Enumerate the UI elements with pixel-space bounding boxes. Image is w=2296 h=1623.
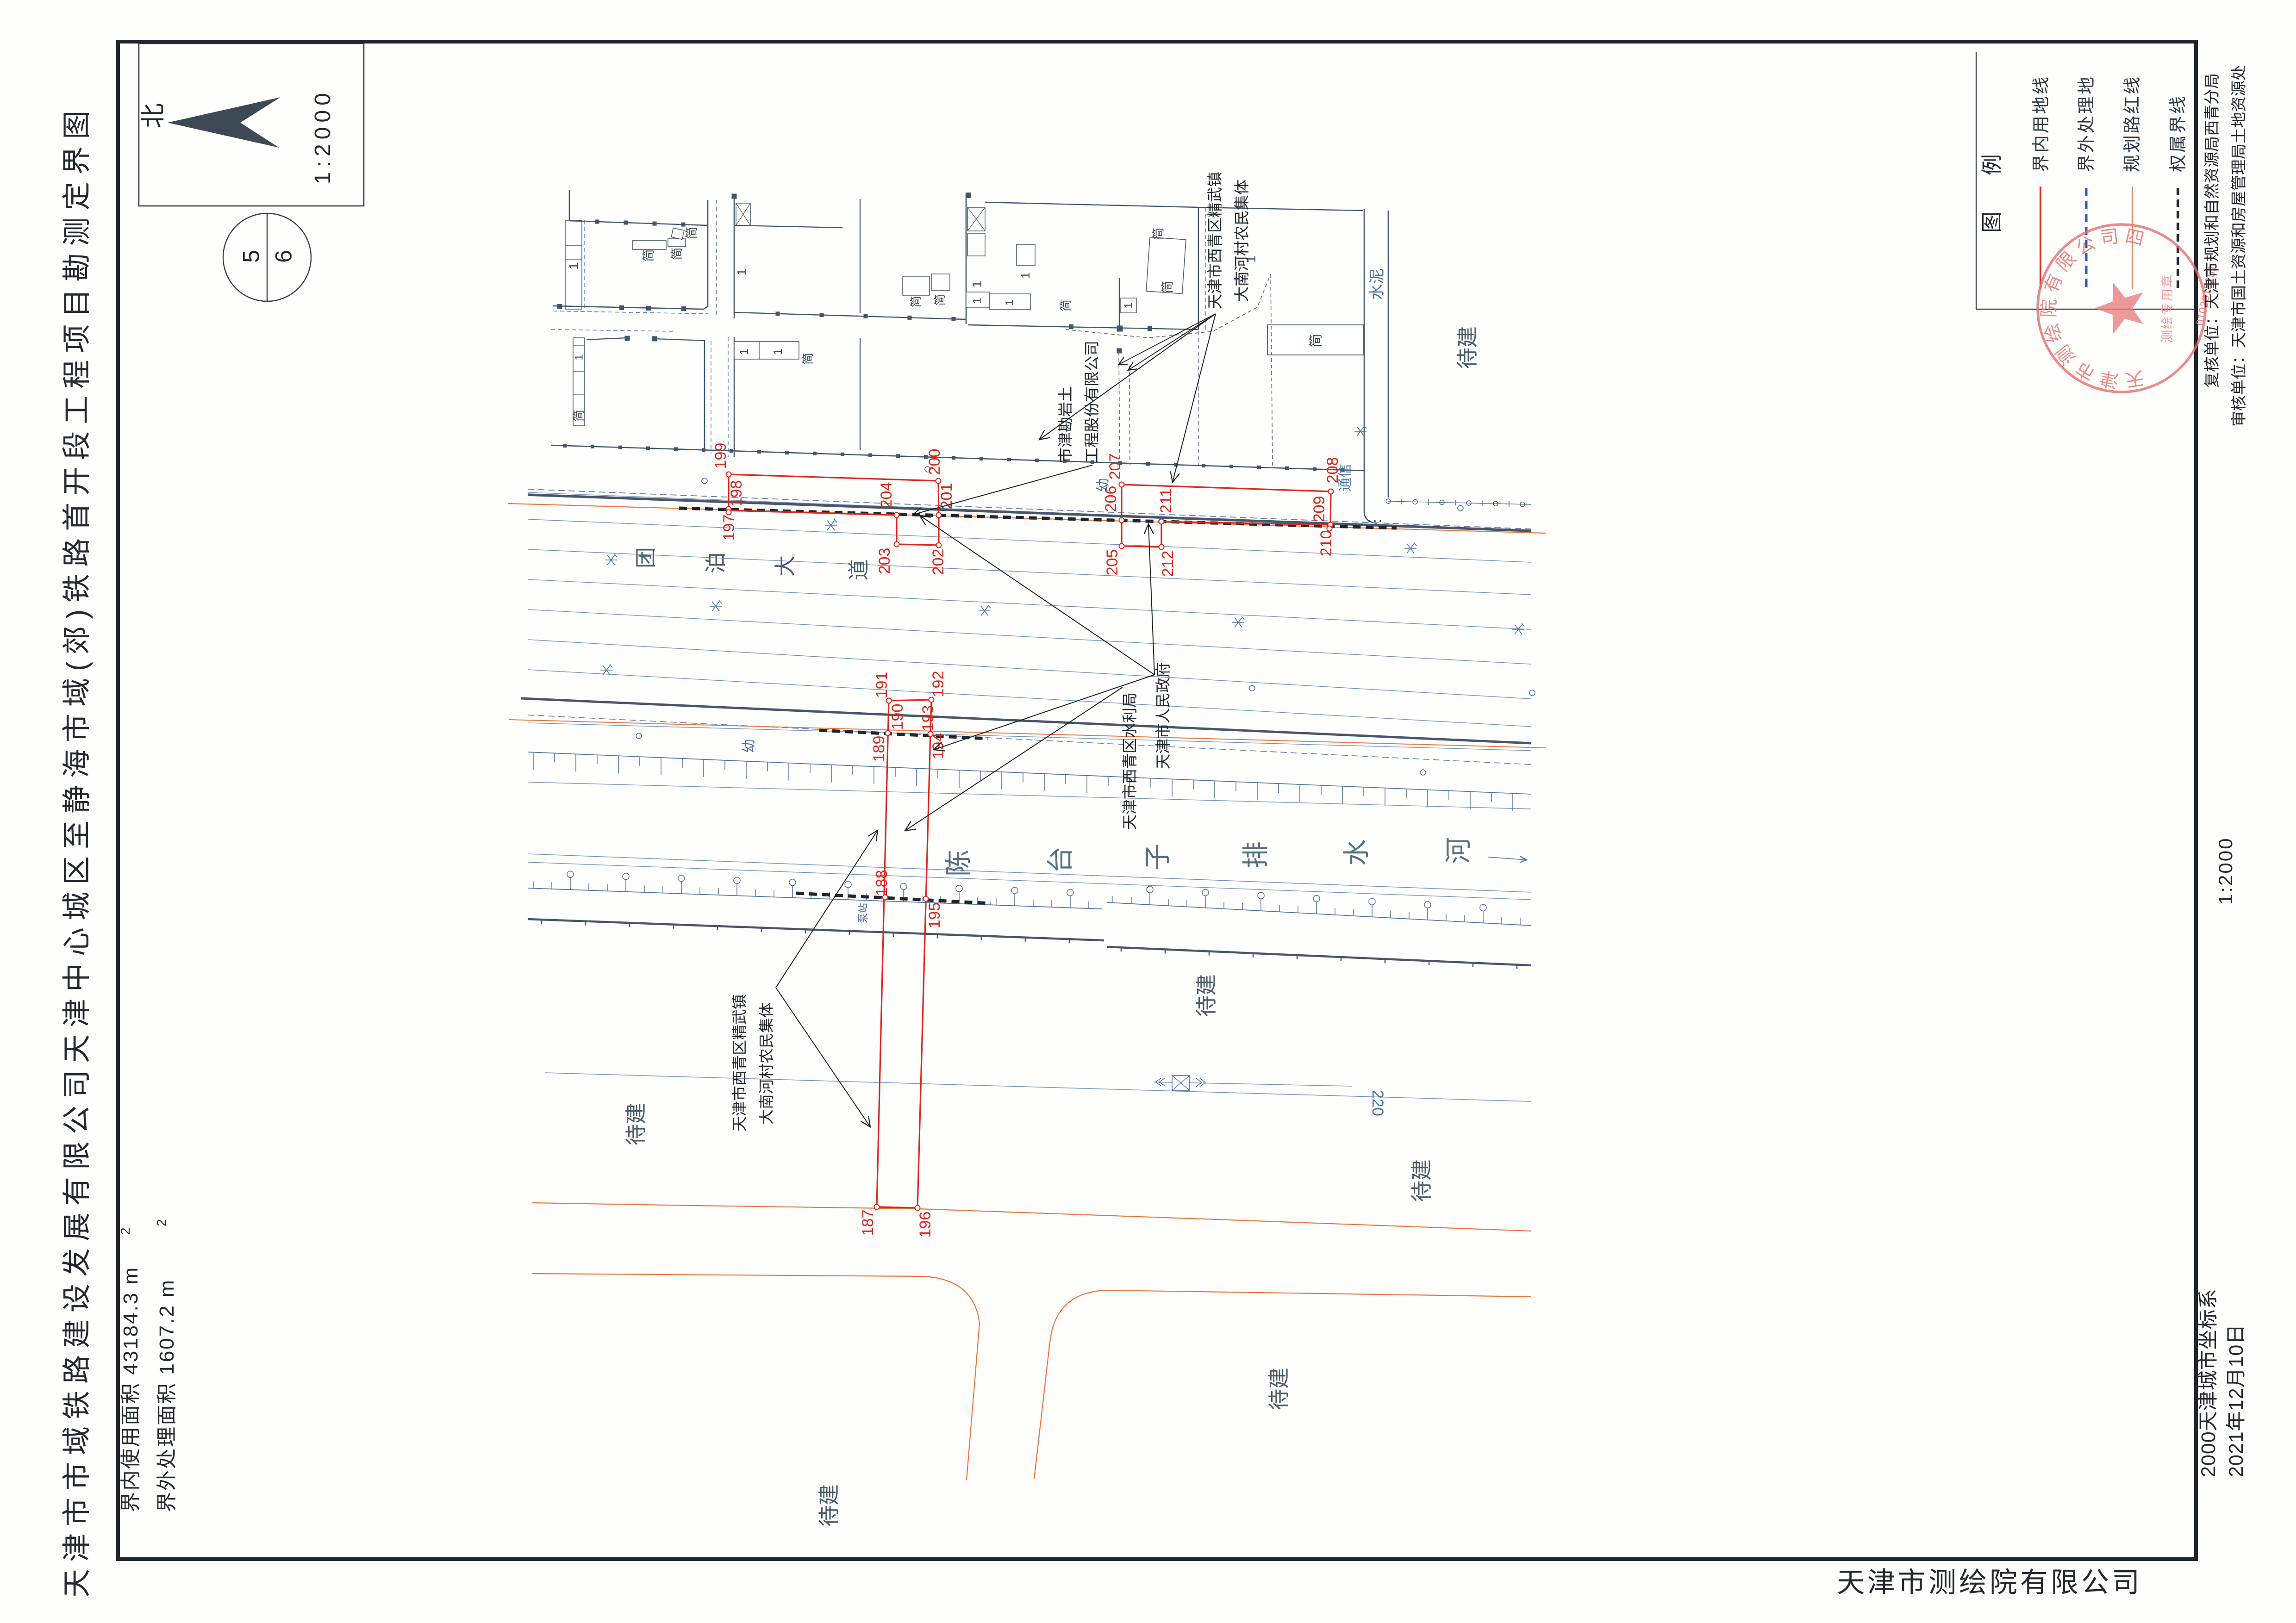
svg-text:简: 简: [670, 248, 684, 260]
svg-text:211: 211: [1157, 488, 1175, 513]
svg-text:212: 212: [1159, 551, 1177, 577]
svg-text:天津市西青区水利局: 天津市西青区水利局: [1121, 692, 1138, 830]
svg-text:团: 团: [634, 547, 658, 568]
svg-text:简: 简: [642, 249, 655, 262]
svg-text:1: 1: [771, 348, 785, 355]
svg-text:复核单位：天津市规划和自然资源局西青分局: 复核单位：天津市规划和自然资源局西青分局: [2203, 73, 2221, 388]
svg-text:209: 209: [1310, 496, 1328, 522]
svg-text:1: 1: [971, 298, 983, 304]
svg-text:例: 例: [1980, 154, 2004, 175]
svg-text:大南河村农民集体: 大南河村农民集体: [758, 1002, 775, 1125]
svg-text:195: 195: [926, 902, 943, 929]
svg-text:天津市西青区精武镇: 天津市西青区精武镇: [731, 994, 748, 1132]
svg-text:1:2000: 1:2000: [311, 88, 335, 184]
svg-text:幼: 幼: [742, 739, 757, 753]
svg-text:2: 2: [118, 1227, 132, 1235]
svg-text:1: 1: [735, 268, 749, 276]
svg-text:天津市测绘院有限公司: 天津市测绘院有限公司: [1837, 1567, 2142, 1598]
svg-text:水: 水: [1341, 839, 1372, 866]
svg-text:191: 191: [873, 672, 891, 698]
svg-text:2: 2: [154, 1219, 168, 1226]
svg-text:简: 简: [685, 227, 699, 239]
svg-text:192: 192: [930, 671, 947, 697]
svg-text:陈: 陈: [943, 850, 973, 877]
svg-text:203: 203: [876, 548, 893, 574]
svg-text:1: 1: [1122, 302, 1135, 308]
svg-text:1:2000: 1:2000: [2215, 837, 2236, 905]
svg-text:大南河村农民集体: 大南河村农民集体: [1233, 180, 1250, 302]
svg-text:审核单位：天津市国土资源和房屋管理局土地资源处: 审核单位：天津市国土资源和房屋管理局土地资源处: [2230, 65, 2248, 427]
svg-text:202: 202: [930, 549, 947, 575]
svg-text:简: 简: [1309, 334, 1324, 348]
svg-text:北: 北: [139, 103, 167, 128]
svg-text:2021年12月10日: 2021年12月10日: [2225, 1324, 2247, 1477]
svg-text:1: 1: [1003, 299, 1016, 305]
svg-text:待建: 待建: [1267, 1368, 1291, 1410]
svg-text:190: 190: [889, 704, 906, 730]
svg-text:206: 206: [1102, 486, 1120, 512]
svg-text:199: 199: [712, 443, 730, 469]
svg-text:198: 198: [728, 480, 745, 507]
svg-text:207: 207: [1106, 454, 1124, 480]
svg-text:简: 简: [1059, 299, 1073, 311]
svg-text:1: 1: [1018, 272, 1032, 279]
svg-text:5: 5: [238, 250, 264, 263]
svg-text:205: 205: [1104, 549, 1121, 576]
svg-text:193: 193: [919, 705, 937, 732]
svg-text:权属界线: 权属界线: [2169, 94, 2188, 172]
svg-text:大: 大: [773, 555, 797, 577]
svg-text:6: 6: [271, 250, 297, 263]
svg-text:台: 台: [1045, 846, 1075, 873]
svg-text:待建: 待建: [1194, 974, 1218, 1017]
svg-text:泵站: 泵站: [857, 903, 869, 923]
svg-text:排: 排: [1241, 841, 1271, 868]
svg-text:1: 1: [567, 262, 581, 270]
svg-text:天津市人民政府: 天津市人民政府: [1154, 662, 1172, 769]
svg-text:天津市市域铁路建设发展有限公司天津中心城区至静海市域(郊)铁: 天津市市域铁路建设发展有限公司天津中心城区至静海市域(郊)铁路首开段工程项目勘测…: [61, 104, 93, 1598]
svg-text:220: 220: [1369, 1090, 1386, 1116]
svg-text:泊: 泊: [704, 552, 728, 573]
svg-text:189: 189: [870, 736, 888, 762]
svg-text:简: 简: [572, 410, 586, 422]
svg-text:1: 1: [573, 354, 585, 360]
svg-text:204: 204: [878, 482, 895, 509]
svg-text:图: 图: [1980, 211, 2004, 233]
svg-text:规划路红线: 规划路红线: [2123, 75, 2142, 172]
svg-text:简: 简: [801, 353, 815, 365]
svg-text:197: 197: [720, 515, 738, 541]
svg-text:待建: 待建: [624, 1103, 648, 1145]
svg-text:2000天津城市坐标系: 2000天津城市坐标系: [2197, 1288, 2220, 1477]
svg-text:界外处理面积 1607.2 m: 界外处理面积 1607.2 m: [156, 1279, 178, 1512]
svg-text:187: 187: [859, 1210, 877, 1236]
svg-text:200: 200: [926, 449, 943, 475]
svg-text:简: 简: [1151, 228, 1165, 240]
svg-text:简: 简: [1160, 281, 1174, 293]
svg-text:界内用地线: 界内用地线: [2032, 75, 2051, 172]
svg-text:1: 1: [970, 280, 984, 288]
svg-text:196: 196: [917, 1212, 934, 1238]
svg-text:188: 188: [873, 870, 891, 896]
svg-text:1: 1: [737, 348, 751, 355]
svg-text:待建: 待建: [1410, 1159, 1434, 1202]
svg-text:测绘专用章: 测绘专用章: [2160, 274, 2174, 343]
svg-text:界外处理地: 界外处理地: [2077, 75, 2096, 172]
svg-text:简: 简: [934, 294, 947, 305]
svg-text:210: 210: [1317, 530, 1335, 557]
svg-text:子: 子: [1142, 844, 1173, 871]
svg-text:水泥: 水泥: [1368, 268, 1386, 300]
svg-text:河: 河: [1443, 837, 1473, 864]
svg-text:208: 208: [1324, 457, 1341, 484]
svg-text:天津市西青区精武镇: 天津市西青区精武镇: [1206, 172, 1223, 309]
svg-text:界内使用面积 43184.3 m: 界内使用面积 43184.3 m: [119, 1266, 142, 1512]
svg-text:市津勘岩土: 市津勘岩土: [1057, 386, 1074, 463]
svg-text:简: 简: [910, 296, 923, 307]
svg-text:待建: 待建: [817, 1484, 841, 1527]
svg-text:道: 道: [847, 559, 871, 580]
svg-text:待建: 待建: [1455, 326, 1479, 369]
